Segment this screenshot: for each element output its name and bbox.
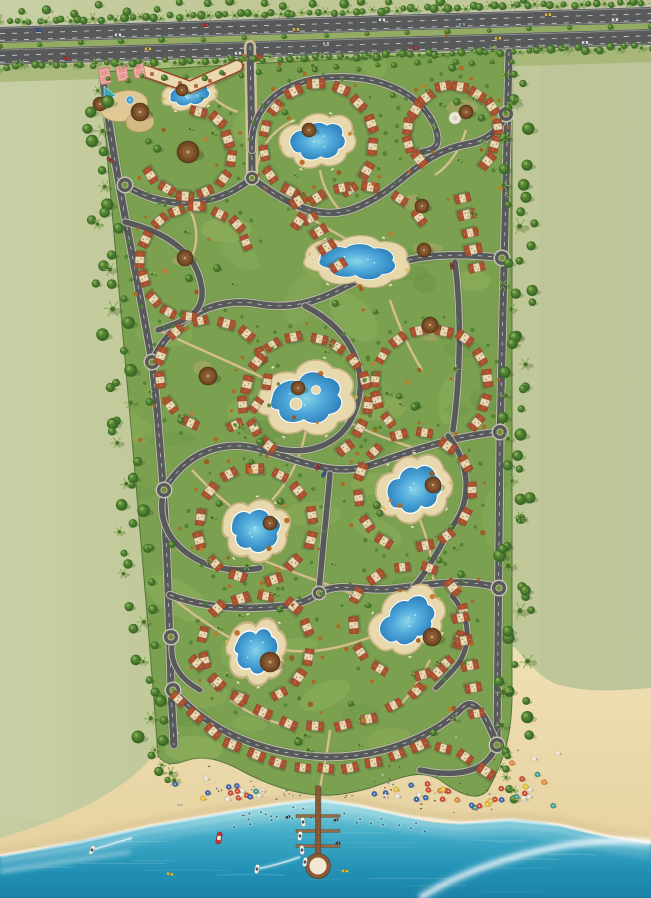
- villa-detail: [195, 203, 196, 204]
- villa-detail: [373, 379, 374, 380]
- hedge-bush: [399, 157, 402, 160]
- tree-highlight: [279, 58, 280, 59]
- tree-highlight: [515, 453, 517, 455]
- hedge-bush: [318, 636, 322, 640]
- hedge-bush: [133, 292, 138, 297]
- tree-highlight: [518, 467, 519, 468]
- pool-lounger: [352, 130, 354, 133]
- roundabout-island: [499, 255, 505, 261]
- palm-crown: [207, 14, 210, 17]
- hedge-bush: [238, 211, 242, 215]
- palm-crown: [324, 10, 327, 13]
- palm-crown: [114, 18, 117, 21]
- hedge-bush: [317, 547, 320, 550]
- hedge-bush: [324, 326, 327, 329]
- tree-highlight: [44, 7, 45, 8]
- hedge-bush: [267, 403, 271, 407]
- palm-crown: [556, 5, 559, 8]
- villa-court: [312, 79, 319, 88]
- hedge-bush: [238, 432, 241, 435]
- tree-highlight: [168, 13, 169, 14]
- tree-highlight: [497, 552, 499, 554]
- hedge-bush: [312, 185, 316, 189]
- tree-highlight: [135, 734, 137, 736]
- hut-peak: [99, 103, 101, 105]
- villa: [294, 762, 312, 775]
- villa-roof-ridge: [353, 630, 354, 633]
- tree-highlight: [521, 182, 523, 184]
- villa-detail: [266, 597, 267, 598]
- villa: [394, 562, 412, 574]
- hedge-bush: [442, 677, 446, 681]
- hedge-bush: [178, 312, 183, 317]
- hedge-bush: [379, 387, 382, 390]
- hut-peak: [184, 257, 186, 259]
- villa-detail: [161, 378, 162, 379]
- tree-highlight: [116, 226, 118, 228]
- villa-court: [322, 764, 329, 772]
- hedge-bush: [421, 316, 424, 319]
- palm-crown: [533, 3, 536, 6]
- villa-court: [263, 378, 271, 385]
- hedge-bush: [352, 339, 355, 342]
- hedge-bush: [243, 582, 247, 586]
- highway-car: [612, 18, 619, 21]
- hedge-bush: [322, 73, 325, 76]
- tennis-court: [98, 67, 112, 85]
- hedge-bush: [217, 105, 221, 109]
- tree-highlight: [519, 210, 520, 211]
- hedge-bush: [203, 306, 206, 309]
- hedge-bush: [368, 414, 372, 418]
- tree-highlight: [525, 162, 527, 164]
- villa-detail: [183, 194, 184, 195]
- palm-crown: [347, 10, 349, 12]
- tree-highlight: [263, 1, 264, 2]
- villa-detail: [268, 380, 269, 381]
- hut-peak: [432, 484, 434, 486]
- tree-highlight: [380, 10, 381, 11]
- hedge-bush: [124, 255, 128, 259]
- hedge-bush: [273, 330, 277, 334]
- hedge-bush: [140, 304, 144, 308]
- hedge-bush: [362, 378, 366, 382]
- hedge-bush: [372, 372, 376, 376]
- villa-detail: [326, 769, 327, 770]
- hedge-bush: [341, 482, 345, 486]
- hedge-bush: [199, 679, 202, 682]
- tree-highlight: [501, 4, 502, 5]
- hedge-bush: [468, 449, 471, 452]
- hedge-bush: [491, 414, 495, 418]
- hedge-bush: [376, 341, 380, 345]
- pool-lounger: [280, 145, 282, 148]
- hedge-bush: [310, 561, 313, 564]
- tree-highlight: [114, 381, 115, 382]
- villa-court: [354, 495, 362, 502]
- villa-court: [403, 122, 412, 129]
- villa-detail: [316, 84, 317, 85]
- palm-crown: [254, 14, 258, 18]
- tree-highlight: [137, 60, 138, 61]
- villa-roof-ridge: [189, 205, 192, 206]
- hedge-bush: [265, 187, 268, 190]
- hedge-bush: [146, 192, 149, 195]
- tree-highlight: [446, 6, 447, 7]
- villa-roof-ridge: [139, 264, 140, 267]
- hedge-bush: [356, 667, 360, 671]
- tree-highlight: [525, 126, 527, 128]
- tree-highlight: [339, 55, 340, 56]
- villa-detail: [240, 405, 241, 406]
- hedge-bush: [146, 364, 149, 367]
- villa-detail: [366, 717, 367, 718]
- tree-highlight: [527, 495, 529, 497]
- tree-highlight: [109, 282, 111, 284]
- tree-highlight: [136, 459, 138, 461]
- hedge-bush: [256, 325, 259, 328]
- hedge-bush: [366, 355, 370, 359]
- hedge-bush: [281, 197, 284, 200]
- tree-highlight: [402, 7, 403, 8]
- hedge-bush: [370, 679, 374, 683]
- tree-highlight: [387, 0, 388, 1]
- car-windshield: [413, 47, 415, 49]
- tree-highlight: [507, 105, 508, 106]
- villa-detail: [185, 198, 186, 199]
- master-plan-canvas: [0, 0, 651, 898]
- roundabout-island: [497, 429, 503, 435]
- hedge-bush: [234, 710, 238, 714]
- villa-court: [399, 563, 406, 571]
- hedge-bush: [394, 139, 398, 143]
- tree-highlight: [88, 109, 90, 111]
- villa: [348, 614, 361, 634]
- tree-highlight: [224, 13, 225, 14]
- villa-court: [135, 257, 143, 264]
- villa-court: [439, 82, 446, 91]
- tree-highlight: [333, 12, 334, 13]
- hut-peak: [139, 111, 142, 114]
- highway-car: [145, 47, 152, 50]
- tree-highlight: [214, 59, 215, 60]
- tree-highlight: [548, 3, 549, 4]
- hedge-bush: [333, 178, 337, 182]
- tree-highlight: [426, 5, 427, 6]
- villa: [465, 482, 476, 500]
- car-windshield: [204, 24, 206, 26]
- palm-crown: [122, 572, 125, 575]
- tree-highlight: [328, 55, 329, 56]
- palm-crown: [321, 55, 324, 58]
- hedge-bush: [481, 504, 484, 507]
- tree-highlight: [158, 698, 160, 700]
- hedge-bush: [247, 138, 251, 142]
- palm-crown: [603, 2, 606, 5]
- car-windshield: [451, 265, 454, 268]
- hedge-bush: [251, 121, 255, 125]
- hedge-bush: [129, 278, 133, 282]
- palm-crown: [144, 62, 146, 64]
- tree-highlight: [587, 2, 588, 3]
- highway-car: [411, 46, 418, 49]
- car-windshield: [37, 29, 39, 31]
- tree-highlight: [506, 463, 508, 465]
- hedge-bush: [301, 194, 305, 198]
- highway-car: [202, 23, 209, 26]
- villa-detail: [405, 126, 406, 127]
- hedge-bush: [395, 124, 399, 128]
- tree-highlight: [363, 54, 364, 55]
- villa-detail: [253, 466, 254, 467]
- hut-peak: [269, 661, 272, 664]
- hedge-bush: [228, 584, 232, 588]
- hedge-bush: [294, 577, 298, 581]
- villa-roof-ridge: [320, 83, 323, 84]
- hedge-bush: [223, 587, 227, 591]
- tree-highlight: [311, 2, 312, 3]
- hedge-bush: [359, 444, 363, 448]
- tree-highlight: [89, 138, 91, 140]
- highway-car: [459, 23, 466, 26]
- hedge-bush: [427, 557, 431, 561]
- tree-highlight: [500, 415, 502, 417]
- tree-highlight: [542, 2, 543, 3]
- hedge-bush: [231, 390, 235, 394]
- villa-detail: [459, 84, 460, 85]
- villa-court: [238, 401, 247, 408]
- tree-highlight: [39, 20, 40, 21]
- hedge-bush: [349, 523, 353, 527]
- tree-highlight: [126, 561, 128, 563]
- tree-highlight: [110, 421, 112, 423]
- villa-detail: [324, 766, 325, 767]
- hedge-bush: [462, 580, 465, 583]
- hedge-bush: [238, 131, 242, 135]
- car-windshield: [381, 19, 383, 21]
- villa-court: [494, 123, 502, 130]
- palm-crown: [499, 723, 504, 728]
- palm-crown: [504, 72, 508, 76]
- villa-detail: [485, 379, 486, 380]
- hedge-bush: [244, 436, 247, 439]
- villa-detail: [306, 657, 307, 658]
- hedge-bush: [456, 319, 459, 322]
- tree-highlight: [521, 387, 522, 388]
- palm-crown: [501, 690, 506, 695]
- hedge-bush: [235, 369, 238, 372]
- hedge-bush: [442, 316, 445, 319]
- villa-detail: [189, 318, 190, 319]
- palm-crown: [580, 3, 583, 6]
- palm-crown: [464, 8, 467, 11]
- hedge-bush: [190, 192, 193, 195]
- hedge-bush: [341, 332, 346, 337]
- palm-crown: [108, 267, 112, 271]
- villa-roof-ridge: [308, 725, 311, 726]
- tree-highlight: [156, 8, 157, 9]
- wave-streak: [287, 836, 339, 837]
- villa-detail: [496, 127, 497, 128]
- villa-detail: [233, 157, 234, 158]
- villa-detail: [201, 516, 202, 517]
- hut-peak: [181, 89, 183, 91]
- tree-highlight: [100, 168, 101, 169]
- tree-highlight: [342, 1, 344, 3]
- tree-highlight: [153, 690, 154, 691]
- tree-highlight: [303, 56, 304, 57]
- palm-crown: [525, 659, 530, 664]
- tree-highlight: [523, 195, 525, 197]
- hedge-bush: [404, 321, 407, 324]
- palm-crown: [506, 437, 510, 441]
- tree-highlight: [204, 60, 205, 61]
- palm-crown: [96, 89, 99, 92]
- tree-highlight: [122, 551, 123, 552]
- hedge-bush: [506, 126, 510, 130]
- tree-highlight: [355, 10, 356, 11]
- tree-highlight: [230, 57, 231, 58]
- highway-car: [293, 28, 300, 31]
- villa-court: [196, 514, 205, 521]
- hedge-bush: [261, 103, 265, 107]
- hedge-bush: [242, 162, 245, 165]
- hedge-bush: [371, 182, 375, 186]
- hedge-bush: [439, 72, 443, 76]
- tree-highlight: [531, 300, 532, 301]
- hedge-bush: [184, 524, 188, 528]
- villa-detail: [376, 378, 377, 379]
- villa-detail: [310, 516, 311, 517]
- tree-highlight: [506, 261, 508, 263]
- tree-highlight: [341, 12, 342, 13]
- villa-detail: [371, 760, 372, 761]
- villa-detail: [229, 158, 230, 159]
- villa-detail: [460, 88, 461, 89]
- hedge-bush: [405, 553, 408, 556]
- resort-master-plan: [0, 0, 651, 898]
- tree-highlight: [100, 19, 101, 20]
- pool-island: [312, 386, 321, 395]
- palm-crown: [44, 20, 47, 23]
- hedge-bush: [277, 382, 280, 385]
- hedge-bush: [471, 600, 474, 603]
- hedge-bush: [240, 144, 243, 147]
- tree-highlight: [189, 59, 190, 60]
- pool-lounger: [309, 252, 311, 255]
- hedge-bush: [364, 438, 368, 442]
- hedge-bush: [201, 97, 204, 100]
- tree-highlight: [513, 291, 515, 293]
- hedge-bush: [254, 424, 257, 427]
- hedge-bush: [256, 340, 259, 343]
- pool-lounger: [406, 268, 408, 271]
- hedge-bush: [379, 114, 383, 118]
- hedge-bush: [476, 619, 480, 623]
- hedge-bush: [241, 356, 245, 360]
- tree-highlight: [281, 4, 282, 5]
- villa-detail: [137, 260, 138, 261]
- tree-highlight: [131, 475, 133, 477]
- palm-crown: [120, 62, 123, 65]
- tree-highlight: [92, 64, 93, 65]
- plaza-center: [453, 116, 458, 121]
- tree-highlight: [520, 407, 521, 408]
- hedge-bush: [185, 326, 189, 330]
- villa-detail: [141, 258, 142, 259]
- car-windshield: [461, 23, 463, 25]
- tree-highlight: [106, 61, 107, 62]
- villa-detail: [499, 125, 500, 126]
- tree-highlight: [104, 201, 106, 203]
- hedge-bush: [336, 624, 340, 628]
- tree-highlight: [101, 149, 103, 151]
- villa-detail: [470, 490, 471, 491]
- hedge-bush: [198, 206, 202, 210]
- villa: [174, 188, 194, 201]
- villa-roof-ridge: [260, 468, 263, 469]
- villa-detail: [488, 376, 489, 377]
- villa: [237, 394, 250, 414]
- tree-highlight: [493, 3, 494, 4]
- hedge-bush: [275, 364, 279, 368]
- palm-crown: [129, 400, 133, 404]
- tree-highlight: [178, 1, 179, 2]
- palm-crown: [186, 14, 189, 17]
- hedge-bush: [424, 685, 427, 688]
- hedge-bush: [340, 78, 343, 81]
- hedge-bush: [321, 655, 325, 659]
- tree-highlight: [286, 12, 287, 13]
- clubhouse-roof-tick: [194, 84, 198, 88]
- tree-highlight: [97, 3, 98, 4]
- palm-crown: [345, 56, 349, 60]
- hedge-bush: [354, 84, 357, 87]
- hedge-bush: [344, 647, 348, 651]
- hedge-bush: [482, 425, 486, 429]
- villa-court: [307, 511, 316, 519]
- villa-court: [421, 428, 428, 437]
- villa-detail: [187, 314, 188, 315]
- villa-court: [368, 143, 377, 150]
- hedge-bush: [243, 457, 246, 460]
- background-shade-right: [540, 0, 651, 760]
- villa-court: [483, 374, 492, 382]
- hedge-bush: [190, 666, 194, 670]
- hedge-bush: [377, 167, 381, 171]
- palm-crown: [300, 11, 302, 13]
- hedge-bush: [287, 208, 290, 211]
- tree-highlight: [619, 1, 620, 2]
- hedge-bush: [285, 464, 288, 467]
- palm-crown: [94, 61, 97, 64]
- palm-crown: [269, 56, 271, 58]
- hedge-bush: [287, 79, 291, 83]
- villa-court: [371, 376, 379, 383]
- hedge-bush: [323, 530, 326, 533]
- highway-car: [115, 33, 122, 36]
- villa: [135, 250, 147, 269]
- tree-highlight: [113, 61, 114, 62]
- hedge-bush: [229, 112, 232, 115]
- villa: [188, 201, 208, 214]
- pool-lounger: [356, 395, 358, 398]
- villa-detail: [401, 565, 402, 566]
- hedge-bush: [312, 680, 316, 684]
- tree-highlight: [59, 17, 60, 18]
- hedge-bush: [303, 72, 307, 76]
- roundabout-island: [161, 487, 167, 493]
